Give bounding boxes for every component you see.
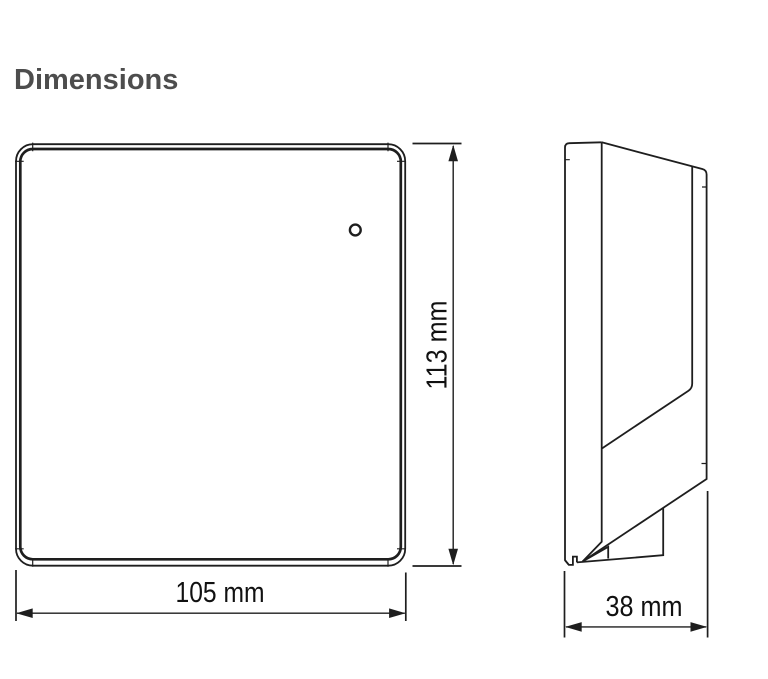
svg-text:113 mm: 113 mm <box>422 301 454 390</box>
svg-text:Dimensions: Dimensions <box>14 64 178 96</box>
svg-text:105 mm: 105 mm <box>176 577 265 609</box>
svg-text:38 mm: 38 mm <box>606 591 683 623</box>
